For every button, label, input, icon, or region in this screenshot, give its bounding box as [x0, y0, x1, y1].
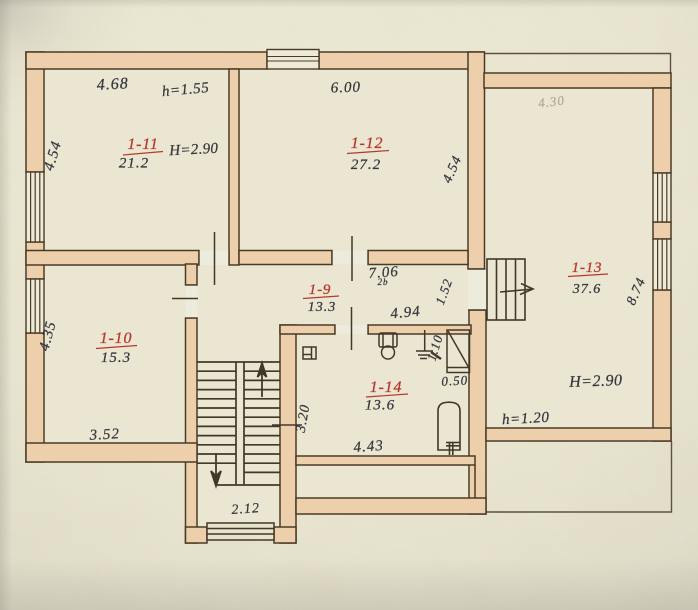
svg-text:37.6: 37.6	[572, 282, 602, 297]
svg-text:0.50: 0.50	[441, 372, 468, 388]
svg-text:13.6: 13.6	[365, 398, 395, 414]
svg-text:1-12: 1-12	[351, 135, 384, 152]
svg-text:1-11: 1-11	[127, 136, 158, 153]
svg-text:1-14: 1-14	[370, 379, 403, 396]
svg-text:h=1.20: h=1.20	[502, 410, 550, 428]
svg-text:H=2.90: H=2.90	[168, 141, 219, 160]
svg-text:4.68: 4.68	[96, 75, 129, 94]
svg-text:3.52: 3.52	[88, 426, 120, 444]
svg-text:1-10: 1-10	[100, 330, 133, 347]
svg-text:2.12: 2.12	[231, 501, 260, 518]
svg-text:2b: 2b	[378, 277, 389, 287]
svg-text:4.43: 4.43	[353, 438, 384, 456]
svg-text:27.2: 27.2	[351, 157, 381, 173]
svg-text:4.94: 4.94	[390, 304, 422, 323]
svg-text:1-9: 1-9	[309, 282, 331, 298]
svg-text:6.00: 6.00	[330, 79, 361, 96]
svg-text:21.2: 21.2	[119, 156, 149, 172]
svg-text:H=2.90: H=2.90	[568, 372, 623, 391]
svg-text:1-13: 1-13	[572, 260, 603, 276]
svg-text:13.3: 13.3	[308, 300, 337, 315]
svg-text:15.3: 15.3	[101, 350, 131, 366]
